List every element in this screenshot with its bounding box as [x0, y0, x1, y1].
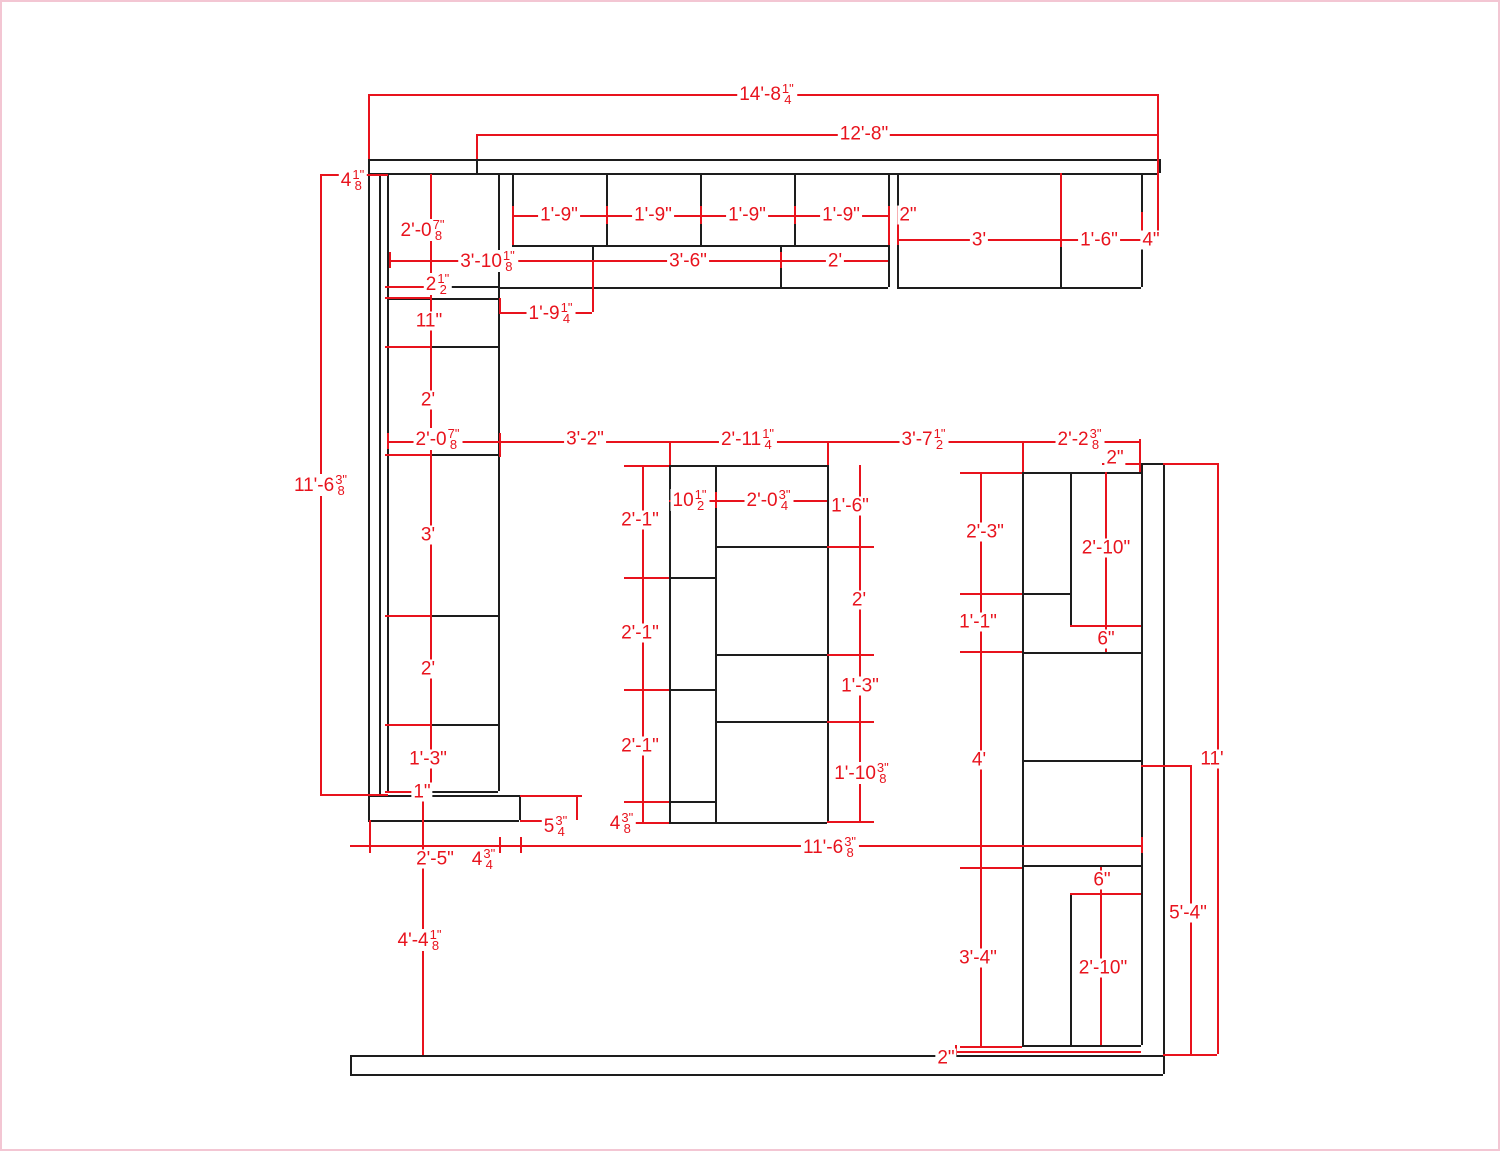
- cabinet-line: [368, 820, 519, 822]
- dimension-fraction: 1"8: [503, 250, 515, 272]
- dimension-text: 5'-4": [1169, 904, 1207, 923]
- dimension-fraction: 3"8: [1090, 428, 1102, 450]
- dimension-label: 4": [1140, 231, 1161, 250]
- dimension-line: [576, 795, 578, 820]
- dimension-label: 43"4: [470, 848, 498, 870]
- dimension-text: 2'-5": [416, 850, 454, 869]
- dimension-label: 3'-4": [957, 949, 999, 968]
- dimension-text: 2'-1": [621, 511, 659, 530]
- cabinet-line: [669, 577, 715, 579]
- dimension-label: 2'-07"8: [414, 428, 463, 450]
- dimension-label: 11'-63"8: [801, 836, 859, 858]
- page: { "drawing": { "title": "cabinet-layout-…: [0, 0, 1500, 1151]
- cabinet-line: [897, 287, 1141, 289]
- dimension-text: 4: [341, 171, 352, 190]
- cabinet-line: [476, 159, 478, 173]
- cabinet-plan-drawing: 14'-81"412'-8"41"81'-9"1'-9"1'-9"1'-9"2"…: [0, 0, 1500, 1151]
- cabinet-line: [1141, 463, 1163, 465]
- dimension-line: [1060, 173, 1062, 247]
- dimension-line: [1163, 1054, 1217, 1056]
- dimension-text: 1'-6": [1080, 231, 1118, 250]
- dimension-text: 4: [472, 850, 483, 869]
- cabinet-line: [669, 465, 827, 467]
- dimension-fraction: 3"8: [877, 762, 889, 784]
- dimension-text: 1'-9": [822, 206, 860, 225]
- dimension-label: 1'-1": [957, 613, 999, 632]
- dimension-text: 6": [1093, 871, 1110, 890]
- dimension-fraction: 7"8: [448, 428, 460, 450]
- cabinet-line: [1022, 865, 1141, 867]
- dimension-line: [387, 433, 389, 449]
- dimension-line: [960, 651, 1022, 653]
- cabinet-line: [669, 465, 671, 822]
- dimension-line: [1141, 837, 1143, 853]
- dimension-line: [1157, 94, 1159, 242]
- dimension-text: 2'-2: [1058, 430, 1089, 449]
- dimension-fraction: 7"8: [433, 219, 445, 241]
- dimension-text: 2: [426, 275, 437, 294]
- dimension-label: 53"4: [542, 815, 570, 837]
- dimension-label: 11": [414, 312, 444, 331]
- cabinet-line: [350, 1074, 1163, 1076]
- dimension-text: 14'-8: [739, 85, 781, 104]
- dimension-label: 2'-1": [619, 511, 661, 530]
- dimension-line: [955, 1051, 1141, 1053]
- dimension-text: 2'-10": [1079, 959, 1127, 978]
- cabinet-line: [1141, 463, 1143, 1045]
- dimension-text: 2'-0: [747, 491, 778, 510]
- dimension-fraction: 1"2: [695, 489, 707, 511]
- dimension-line: [368, 94, 370, 159]
- cabinet-line: [1070, 472, 1072, 625]
- dimension-label: 1'-91"4: [527, 302, 576, 324]
- cabinet-line: [669, 801, 715, 803]
- dimension-line: [624, 689, 669, 691]
- dimension-line: [715, 492, 717, 508]
- dimension-label: 2'-5": [414, 850, 456, 869]
- dimension-label: 4': [970, 751, 988, 770]
- cabinet-line: [379, 173, 381, 795]
- dimension-label: 5'-4": [1167, 904, 1209, 923]
- dimension-line: [499, 433, 501, 457]
- dimension-label: 1'-6": [1078, 231, 1120, 250]
- dimension-label: 2'-10": [1080, 539, 1132, 558]
- dimension-label: 12'-8": [838, 125, 890, 144]
- dimension-fraction: 1"8: [430, 929, 442, 951]
- dimension-fraction: 3"8: [335, 474, 347, 496]
- dimension-line: [960, 1046, 1022, 1048]
- dimension-label: 43"8: [608, 812, 636, 834]
- dimension-line: [320, 794, 388, 796]
- dimension-text: 2'-1": [621, 737, 659, 756]
- dimension-label: 14'-81"4: [737, 83, 797, 105]
- cabinet-line: [350, 1055, 352, 1074]
- dimension-label: 2'-23"8: [1056, 428, 1105, 450]
- dimension-text: 3'-6": [669, 252, 707, 271]
- dimension-text: 2'-0: [416, 430, 447, 449]
- dimension-line: [350, 845, 1141, 847]
- dimension-label: 3': [419, 526, 437, 545]
- dimension-line: [960, 472, 1022, 474]
- dimension-line: [385, 724, 430, 726]
- dimension-label: 1'-9": [820, 206, 862, 225]
- dimension-line: [960, 867, 1022, 869]
- cabinet-line: [715, 546, 827, 548]
- cabinet-line: [498, 287, 888, 289]
- cabinet-line: [715, 465, 717, 822]
- dimension-text: 3'-10: [460, 252, 502, 271]
- dimension-label: 2'-1": [619, 737, 661, 756]
- dimension-text: 2'-0: [401, 221, 432, 240]
- dimension-line: [476, 134, 478, 159]
- dimension-line: [499, 298, 501, 312]
- dimension-line: [385, 297, 430, 299]
- dimension-label: 2": [1104, 449, 1125, 468]
- dimension-label: 6": [1095, 630, 1116, 649]
- dimension-label: 11'-63"8: [292, 474, 350, 496]
- dimension-label: 1'-9": [538, 206, 580, 225]
- dimension-text: 10: [673, 491, 694, 510]
- cabinet-line: [368, 159, 1159, 161]
- dimension-text: 2'-11: [721, 430, 761, 449]
- dimension-line: [369, 820, 371, 853]
- dimension-line: [1070, 893, 1141, 895]
- dimension-text: 11'-6: [803, 838, 843, 857]
- dimension-fraction: 1"4: [561, 302, 573, 324]
- dimension-line: [700, 206, 702, 224]
- dimension-fraction: 1"4: [782, 83, 794, 105]
- cabinet-line: [715, 721, 827, 723]
- dimension-text: 1": [413, 783, 430, 802]
- dimension-line: [794, 206, 796, 224]
- dimension-line: [1163, 463, 1217, 465]
- dimension-label: 41"8: [339, 169, 367, 191]
- dimension-text: 2': [852, 591, 866, 610]
- dimension-text: 1'-9": [634, 206, 672, 225]
- dimension-text: 2'-3": [966, 523, 1004, 542]
- dimension-label: 1'-9": [632, 206, 674, 225]
- dimension-line: [499, 837, 501, 853]
- dimension-label: 2': [826, 252, 844, 271]
- dimension-label: 2': [419, 660, 437, 679]
- dimension-label: 2': [419, 391, 437, 410]
- dimension-fraction: 3"4: [483, 848, 495, 870]
- dimension-line: [520, 837, 522, 853]
- dimension-fraction: 3"4: [555, 815, 567, 837]
- dimension-text: 3': [421, 526, 435, 545]
- dimension-line: [1070, 625, 1141, 627]
- dimension-line: [827, 721, 874, 723]
- dimension-fraction: 1"4: [762, 428, 774, 450]
- cabinet-line: [1159, 159, 1161, 173]
- cabinet-line: [1070, 893, 1072, 1045]
- dimension-text: 11': [1200, 750, 1223, 769]
- cabinet-line: [512, 245, 888, 247]
- dimension-text: 4': [972, 751, 986, 770]
- dimension-line: [430, 174, 432, 791]
- cabinet-line: [1022, 652, 1141, 654]
- dimension-text: 5: [544, 817, 555, 836]
- dimension-line: [780, 252, 782, 268]
- dimension-text: 2': [828, 252, 842, 271]
- dimension-fraction: 1"8: [352, 169, 364, 191]
- dimension-line: [385, 454, 430, 456]
- dimension-line: [389, 252, 391, 268]
- dimension-line: [1139, 439, 1141, 472]
- dimension-fraction: 3"8: [844, 836, 856, 858]
- dimension-text: 2": [937, 1049, 954, 1068]
- dimension-text: 1'-10: [834, 764, 876, 783]
- dimension-text: 1'-9: [529, 304, 560, 323]
- dimension-label: 2'-1": [619, 624, 661, 643]
- cabinet-line: [1022, 1045, 1141, 1047]
- dimension-label: 3'-2": [564, 430, 606, 449]
- dimension-label: 1'-3": [839, 677, 881, 696]
- dimension-fraction: 3"4: [779, 489, 791, 511]
- cabinet-line: [715, 654, 827, 656]
- dimension-label: 6": [1091, 871, 1112, 890]
- dimension-text: 1'-3": [409, 750, 447, 769]
- dimension-line: [960, 593, 1022, 595]
- dimension-label: 2': [850, 591, 868, 610]
- dimension-label: 2'-111"4: [719, 428, 777, 450]
- dimension-line: [385, 615, 430, 617]
- dimension-label: 1'-103"8: [832, 762, 892, 784]
- dimension-label: 2'-3": [964, 523, 1006, 542]
- dimension-label: 2'-03"4: [745, 489, 794, 511]
- dimension-line: [669, 441, 671, 465]
- dimension-text: 3'-4": [959, 949, 997, 968]
- dimension-line: [606, 206, 608, 224]
- dimension-line: [1141, 765, 1190, 767]
- cabinet-line: [1022, 472, 1024, 1045]
- dimension-line: [1022, 441, 1024, 472]
- dimension-label: 3'-71"2: [900, 428, 949, 450]
- dimension-line: [827, 654, 874, 656]
- dimension-fraction: 1"2: [437, 273, 449, 295]
- dimension-label: 1": [411, 783, 432, 802]
- dimension-text: 1'-3": [841, 677, 879, 696]
- dimension-line: [512, 206, 514, 245]
- dimension-fraction: 3"8: [621, 812, 633, 834]
- dimension-line: [827, 821, 874, 823]
- dimension-fraction: 1"2: [934, 428, 946, 450]
- dimension-label: 1'-6": [829, 497, 871, 516]
- cabinet-line: [669, 689, 715, 691]
- dimension-label: 4'-41"8: [396, 929, 445, 951]
- cabinet-line: [368, 159, 370, 820]
- cabinet-line: [1163, 463, 1165, 1074]
- dimension-line: [827, 546, 874, 548]
- dimension-text: 1'-9": [540, 206, 578, 225]
- dimension-label: 2": [897, 206, 918, 225]
- dimension-text: 6": [1097, 630, 1114, 649]
- dimension-line: [520, 795, 582, 797]
- dimension-text: 2': [421, 660, 435, 679]
- dimension-text: 3': [972, 231, 986, 250]
- dimension-label: 2'-07"8: [399, 219, 448, 241]
- cabinet-line: [350, 1055, 1163, 1057]
- dimension-text: 1'-6": [831, 497, 869, 516]
- cabinet-line: [368, 795, 519, 797]
- dimension-text: 3'-7: [902, 430, 933, 449]
- dimension-text: 12'-8": [840, 125, 888, 144]
- cabinet-line: [368, 173, 1159, 175]
- dimension-line: [624, 465, 669, 467]
- dimension-label: 101"2: [671, 489, 710, 511]
- dimension-text: 1'-1": [959, 613, 997, 632]
- dimension-line: [827, 441, 829, 465]
- dimension-text: 1'-9": [728, 206, 766, 225]
- dimension-text: 11": [416, 312, 442, 331]
- dimension-text: 3'-2": [566, 430, 604, 449]
- dimension-line: [888, 206, 890, 245]
- dimension-label: 3'-6": [667, 252, 709, 271]
- cabinet-line: [519, 795, 521, 820]
- dimension-text: 2'-1": [621, 624, 659, 643]
- dimension-line: [592, 260, 594, 312]
- dimension-text: 2': [421, 391, 435, 410]
- dimension-line: [476, 134, 1157, 136]
- dimension-label: 2": [935, 1049, 956, 1068]
- dimension-label: 21"2: [424, 273, 452, 295]
- dimension-line: [385, 346, 430, 348]
- dimension-text: 2": [899, 206, 916, 225]
- cabinet-line: [1022, 472, 1141, 474]
- dimension-text: 4'-4: [398, 931, 429, 950]
- cabinet-line: [669, 822, 827, 824]
- dimension-label: 2'-10": [1077, 959, 1129, 978]
- dimension-text: 2": [1106, 449, 1123, 468]
- dimension-label: 11': [1198, 750, 1225, 769]
- dimension-line: [422, 795, 424, 1055]
- dimension-text: 2'-10": [1082, 539, 1130, 558]
- dimension-label: 1'-3": [407, 750, 449, 769]
- dimension-line: [624, 577, 669, 579]
- cabinet-line: [1022, 593, 1070, 595]
- dimension-text: 4": [1142, 231, 1159, 250]
- dimension-label: 3'-101"8: [458, 250, 518, 272]
- dimension-text: 4: [610, 814, 621, 833]
- cabinet-line: [827, 465, 829, 822]
- dimension-label: 1'-9": [726, 206, 768, 225]
- dimension-label: 3': [970, 231, 988, 250]
- dimension-text: 11'-6: [294, 476, 334, 495]
- cabinet-line: [1022, 760, 1141, 762]
- dimension-line: [624, 801, 669, 803]
